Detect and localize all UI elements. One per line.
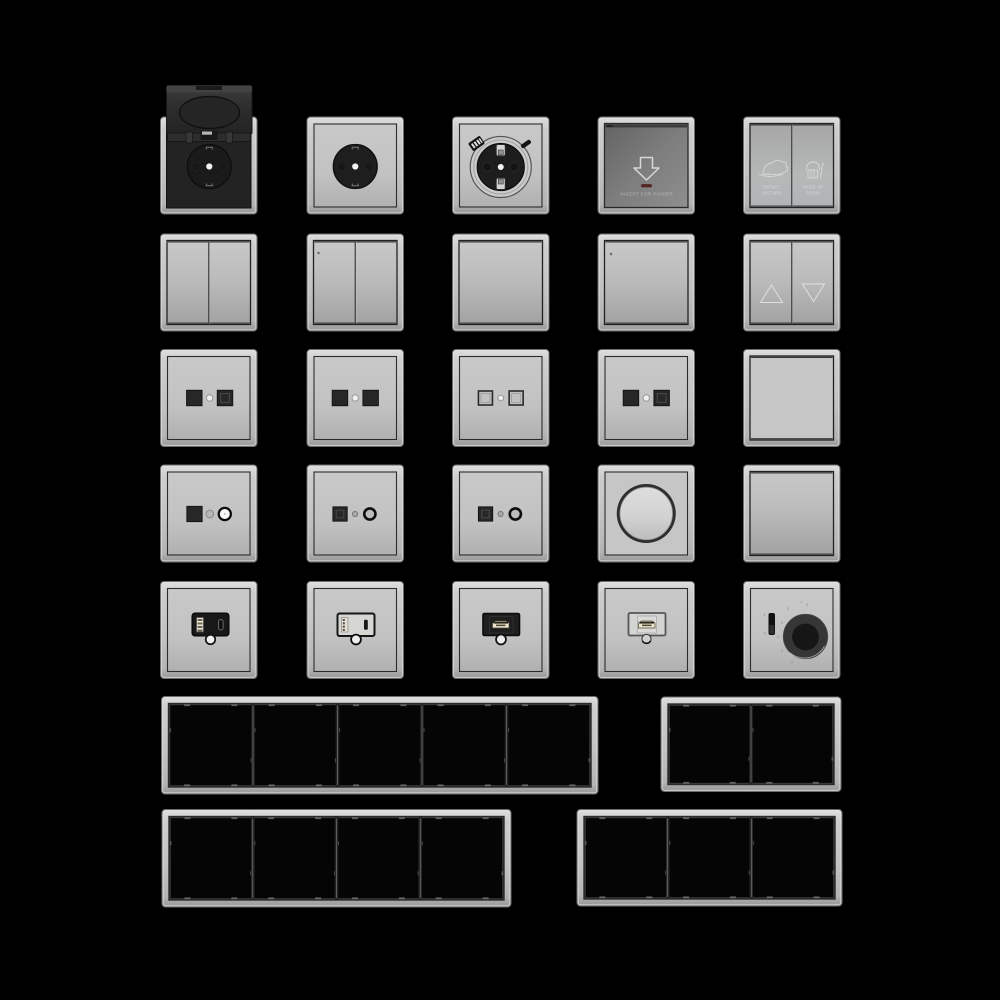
svg-text:ROOM: ROOM xyxy=(806,191,820,196)
svg-text:MAKE UP: MAKE UP xyxy=(803,185,823,190)
svg-text:DISTURB: DISTURB xyxy=(762,191,781,196)
svg-text:INSERT FOR POWER: INSERT FOR POWER xyxy=(620,192,673,198)
svg-text:DO NOT: DO NOT xyxy=(763,185,780,190)
